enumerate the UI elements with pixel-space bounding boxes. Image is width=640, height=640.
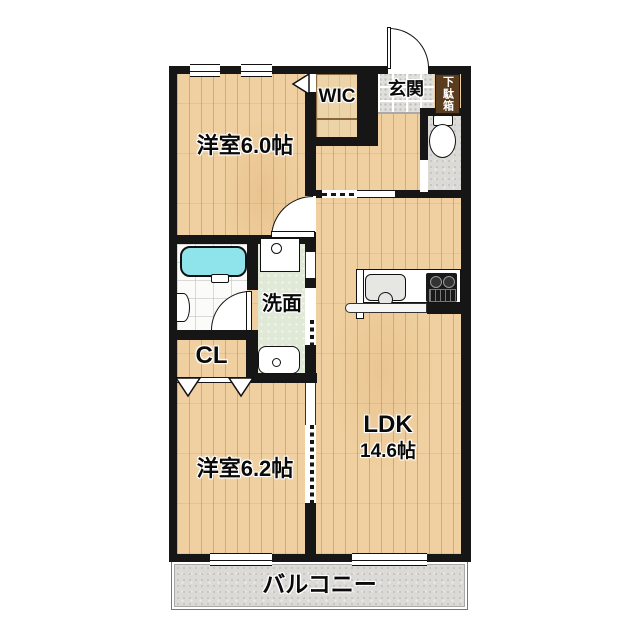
wall-bedroom2-ldk-bottom bbox=[305, 503, 316, 554]
wall-bath-bottom bbox=[169, 330, 258, 340]
stove-grill bbox=[429, 289, 456, 302]
entrance-label: 玄関 bbox=[378, 80, 434, 99]
entrance-door-arc bbox=[389, 28, 429, 68]
ldk-name: LDK bbox=[363, 411, 412, 438]
washroom-accordion-door bbox=[310, 320, 314, 345]
ldk-size: 14.6帖 bbox=[360, 441, 416, 462]
toilet-door-gap bbox=[420, 160, 428, 192]
bedroom2-label: 洋室6.2帖 bbox=[150, 457, 340, 480]
window-ldk bbox=[352, 553, 427, 566]
wall-right bbox=[461, 66, 471, 562]
floor-plan: 下駄箱 洋室6.0帖 WIC 玄関 洗面 CL LDK 14.6帖 洋室6.2帖… bbox=[0, 0, 640, 640]
wall-washroom-right-3 bbox=[305, 345, 316, 383]
ldk-label: LDK 14.6帖 bbox=[338, 412, 438, 462]
bedroom1-label: 洋室6.0帖 bbox=[150, 134, 340, 157]
balcony-label: バルコニー bbox=[171, 572, 468, 596]
wall-kitchen-stub bbox=[427, 302, 461, 314]
closet-folding-door-icon-right bbox=[228, 377, 254, 397]
shoe-cabinet-label: 下駄箱 bbox=[440, 76, 456, 112]
kitchen-counter-front-edge bbox=[345, 303, 427, 313]
wall-washroom-right-1 bbox=[305, 244, 316, 252]
bedroom1-door-leaf bbox=[271, 231, 315, 238]
wall-toilet-left bbox=[420, 116, 428, 160]
stove-burner-left bbox=[430, 276, 442, 288]
window-bedroom2 bbox=[210, 553, 272, 566]
bathtub-faucet bbox=[211, 274, 229, 283]
washroom-slide-door bbox=[305, 252, 316, 278]
bath-side-basin bbox=[177, 293, 190, 322]
wic-label: WIC bbox=[306, 87, 368, 107]
bath-door-leaf bbox=[246, 291, 252, 331]
window-bedroom1-right bbox=[241, 64, 272, 77]
bathtub bbox=[180, 246, 247, 277]
closet-label: CL bbox=[177, 343, 246, 368]
closet-folding-door-icon-left bbox=[175, 377, 201, 397]
entrance-door-leaf bbox=[387, 27, 391, 69]
wic-shelf-line bbox=[316, 118, 357, 120]
wall-washroom-right-2 bbox=[305, 278, 316, 288]
hall-ldk-open-passage-dashes bbox=[322, 193, 357, 196]
wall-bath-washroom bbox=[247, 235, 258, 290]
washroom-label: 洗面 bbox=[256, 294, 308, 315]
toilet-bowl bbox=[429, 124, 456, 158]
washing-machine-drain bbox=[272, 358, 281, 367]
hall-ldk-opening bbox=[357, 190, 395, 198]
wall-hall-ldk-right bbox=[395, 190, 461, 198]
stove-burner-right bbox=[443, 276, 455, 288]
window-bedroom1-left bbox=[190, 64, 220, 77]
shoe-cabinet: 下駄箱 bbox=[435, 74, 460, 114]
bedroom2-ldk-opening bbox=[305, 383, 316, 425]
vanity-sink bbox=[260, 238, 300, 272]
vanity-faucet bbox=[271, 243, 282, 254]
